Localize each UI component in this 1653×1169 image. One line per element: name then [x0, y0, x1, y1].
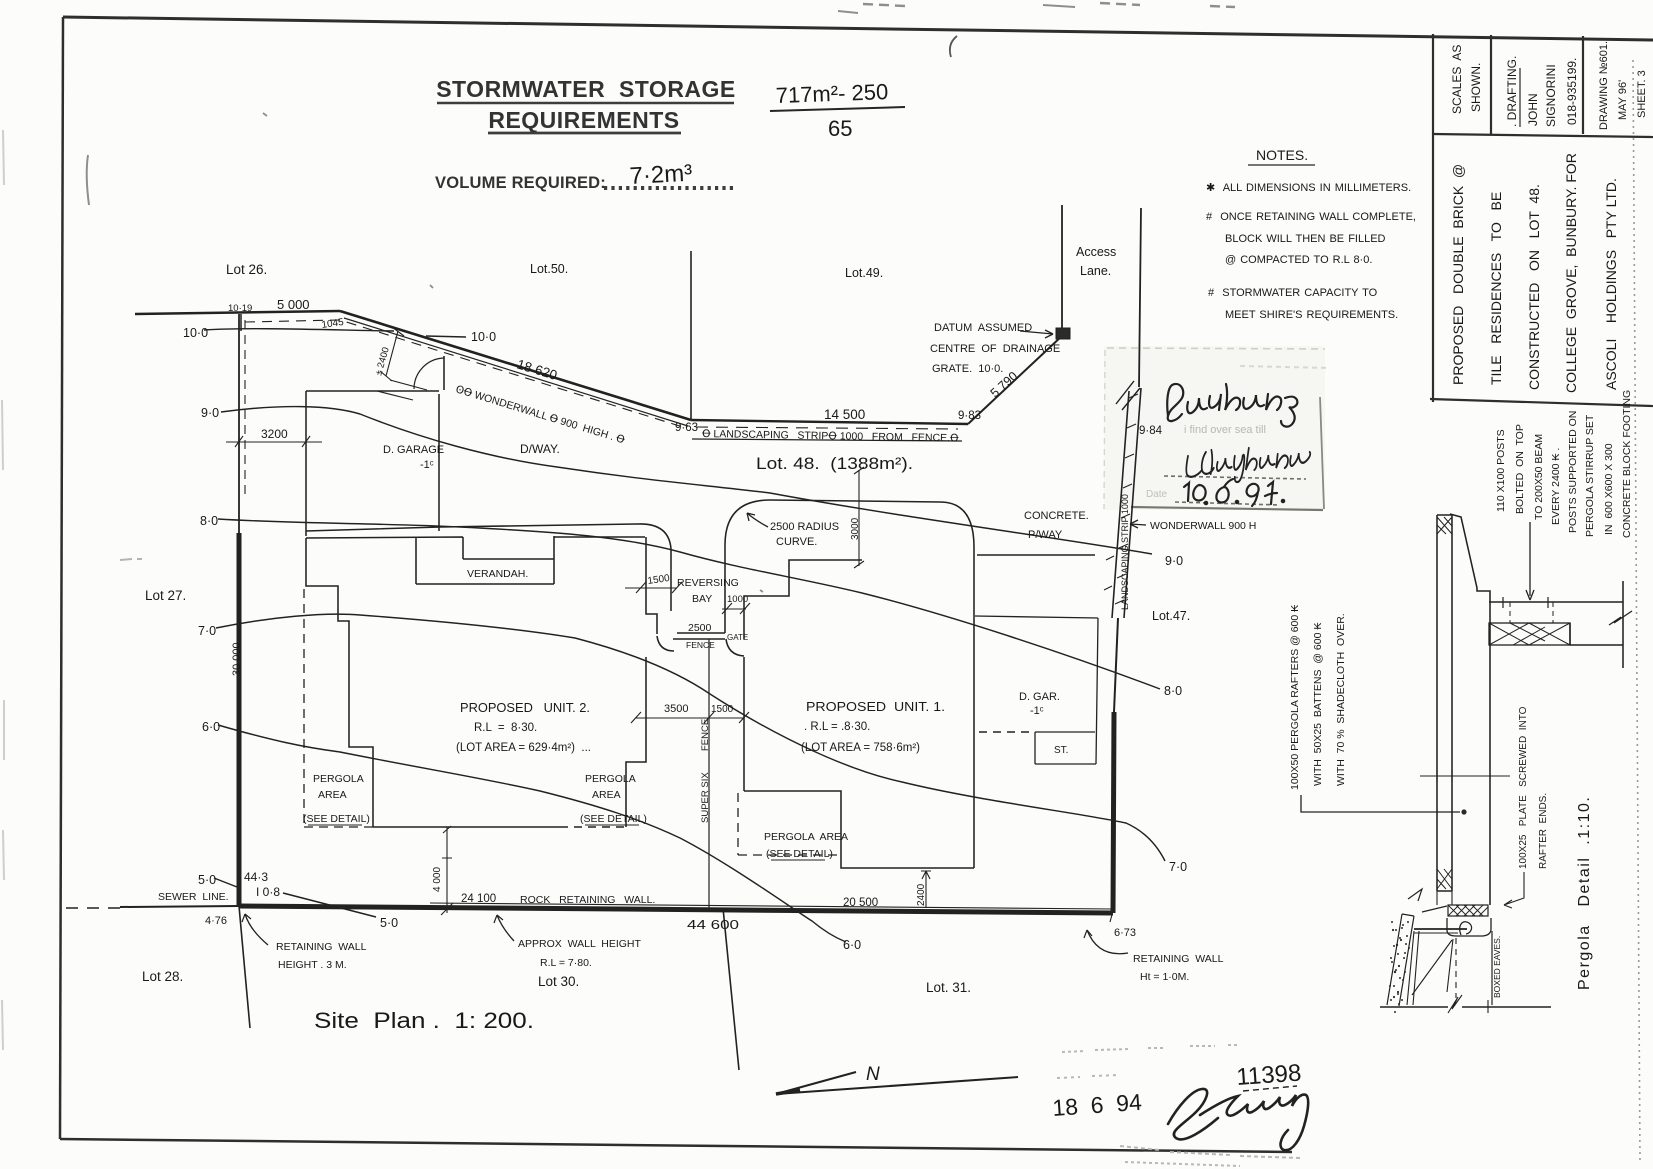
svg-text:(SEE DETAIL): (SEE DETAIL) — [766, 848, 833, 860]
svg-text:Pergola Detail .1:10.: Pergola Detail .1:10. — [1576, 796, 1593, 990]
svg-text:100X50 PERGOLA RAFTERS @ 600 ₭: 100X50 PERGOLA RAFTERS @ 600 ₭ — [1289, 605, 1301, 790]
svg-text:Date: Date — [1146, 489, 1168, 500]
svg-text:2500: 2500 — [688, 622, 712, 634]
svg-text:Lot. 31.: Lot. 31. — [926, 980, 971, 995]
svg-text:SCALES AS: SCALES AS — [1450, 45, 1464, 114]
svg-text:2500 RADIUS: 2500 RADIUS — [770, 521, 839, 533]
svg-text:ST.: ST. — [1054, 745, 1068, 756]
svg-text:110 X100 POSTS: 110 X100 POSTS — [1495, 429, 1507, 512]
svg-text:100X25 PLATE SCREWED INTO: 100X25 PLATE SCREWED INTO — [1518, 706, 1529, 869]
svg-text:MAY 96': MAY 96' — [1617, 80, 1629, 120]
svg-text:6·73: 6·73 — [1114, 927, 1136, 939]
svg-text:ROCK RETAINING WALL.: ROCK RETAINING WALL. — [520, 894, 655, 906]
svg-text:CONCRETE.: CONCRETE. — [1024, 510, 1089, 522]
svg-text:3500: 3500 — [664, 703, 688, 715]
svg-text:i find over sea till: i find over sea till — [1184, 424, 1266, 436]
svg-text:PERGOLA: PERGOLA — [585, 773, 636, 785]
svg-text:44·3: 44·3 — [244, 870, 268, 884]
svg-text:FENCE: FENCE — [686, 640, 715, 650]
svg-text:7·0: 7·0 — [1169, 860, 1187, 874]
svg-text:4 000: 4 000 — [432, 867, 443, 892]
svg-text:# ONCE RETAINING WALL COMPLET: # ONCE RETAINING WALL COMPLETE, — [1206, 211, 1416, 223]
svg-text:(SEE DETAIL): (SEE DETAIL) — [303, 813, 370, 825]
svg-text:SEWER LINE.: SEWER LINE. — [158, 891, 229, 903]
svg-text:FENCE: FENCE — [700, 719, 711, 751]
svg-text:PERGOLA AREA: PERGOLA AREA — [764, 831, 848, 843]
svg-text:65: 65 — [828, 116, 852, 141]
svg-text:GRATE. 10·0.: GRATE. 10·0. — [932, 363, 1003, 375]
svg-text:STORMWATER STORAGE: STORMWATER STORAGE — [436, 76, 736, 102]
svg-text:SUPER SIX: SUPER SIX — [700, 772, 711, 823]
svg-text:CURVE.: CURVE. — [776, 536, 817, 548]
svg-text:1000: 1000 — [727, 594, 748, 605]
svg-text:24 100: 24 100 — [461, 893, 496, 905]
svg-text:1500: 1500 — [711, 704, 734, 715]
svg-text:N: N — [866, 1064, 880, 1085]
svg-text:9·63: 9·63 — [675, 422, 698, 434]
svg-text:# STORMWATER CAPACITY TO: # STORMWATER CAPACITY TO — [1208, 287, 1378, 299]
svg-text:BOXED EAVES.: BOXED EAVES. — [1492, 936, 1502, 998]
svg-text:10·0: 10·0 — [471, 330, 496, 344]
svg-text:APPROX WALL HEIGHT: APPROX WALL HEIGHT — [518, 938, 641, 950]
svg-text:NOTES.: NOTES. — [1256, 147, 1308, 163]
svg-text:Lane.: Lane. — [1080, 264, 1111, 278]
svg-text:VERANDAH.: VERANDAH. — [467, 568, 528, 580]
svg-text:9·0: 9·0 — [201, 406, 219, 420]
svg-text:Lot 26.: Lot 26. — [226, 262, 267, 277]
svg-text:5·0: 5·0 — [380, 916, 398, 930]
svg-text:20 500: 20 500 — [843, 897, 878, 909]
svg-text:WITH 50X25 BATTENS @ 600 ₭: WITH 50X25 BATTENS @ 600 ₭ — [1312, 623, 1324, 786]
svg-text:AREA: AREA — [318, 789, 347, 801]
svg-text:LANDSCAPING STRIP 1000: LANDSCAPING STRIP 1000 — [1120, 494, 1130, 610]
svg-text:6·0: 6·0 — [843, 938, 861, 952]
svg-text:DATUM ASSUMED: DATUM ASSUMED — [934, 322, 1032, 334]
svg-text:IN 600 X600 X 300: IN 600 X600 X 300 — [1603, 443, 1615, 535]
svg-text:RETAINING WALL: RETAINING WALL — [1133, 953, 1224, 965]
svg-text:-1ᶜ: -1ᶜ — [420, 459, 434, 471]
svg-text:(LOT AREA = 758·6m²): (LOT AREA = 758·6m²) — [801, 742, 920, 754]
svg-text:TO 200X50 BEAM: TO 200X50 BEAM — [1533, 434, 1545, 520]
svg-text:SHEET. 3: SHEET. 3 — [1636, 70, 1648, 118]
svg-text:REVERSING: REVERSING — [677, 577, 739, 589]
svg-text:10·0: 10·0 — [183, 326, 208, 340]
svg-text:. DRAFTING.: . DRAFTING. — [1505, 56, 1519, 127]
svg-text:EVERY 2400 ₭ .: EVERY 2400 ₭ . — [1550, 448, 1562, 525]
svg-text:D. GARAGE: D. GARAGE — [383, 444, 444, 456]
svg-text:✱ ALL DIMENSIONS IN MILLIMETE: ✱ ALL DIMENSIONS IN MILLIMETERS. — [1206, 182, 1411, 194]
svg-text:Lot.50.: Lot.50. — [530, 262, 568, 276]
svg-text:9·84: 9·84 — [1139, 425, 1163, 437]
svg-text:I 0·8: I 0·8 — [256, 885, 280, 899]
svg-text:BLOCK WILL THEN BE FILLED: BLOCK WILL THEN BE FILLED — [1225, 233, 1386, 245]
svg-text:3200: 3200 — [261, 427, 288, 441]
svg-text:Lot.47.: Lot.47. — [1152, 609, 1190, 623]
svg-text:CONSTRUCTED ON LOT 48.: CONSTRUCTED ON LOT 48. — [1526, 184, 1542, 390]
svg-text:Ꝋ LANDSCAPING STRIPꝊ 1000: Ꝋ LANDSCAPING STRIPꝊ 1000 FROM FENCE.Ꝋ — [702, 428, 959, 444]
svg-text:7·2m³: 7·2m³ — [629, 160, 693, 190]
svg-text:PERGOLA: PERGOLA — [313, 773, 364, 785]
svg-text:ASCOLI HOLDINGS PTY LTD.: ASCOLI HOLDINGS PTY LTD. — [1603, 178, 1619, 390]
svg-text:8·0: 8·0 — [1164, 684, 1182, 698]
svg-text:Lot. 48. (1388m²).: Lot. 48. (1388m²). — [756, 455, 913, 473]
svg-text:± 2400: ± 2400 — [373, 346, 392, 377]
svg-text:Site Plan . 1: 200.: Site Plan . 1: 200. — [314, 1008, 534, 1033]
svg-text:018-935199.: 018-935199. — [1565, 58, 1579, 125]
svg-text:JOHN: JOHN — [1526, 93, 1540, 126]
svg-text:SHOWN.: SHOWN. — [1469, 63, 1483, 112]
svg-text:10·19: 10·19 — [228, 303, 252, 314]
svg-text:5 000: 5 000 — [277, 297, 310, 312]
svg-text:GATE: GATE — [727, 633, 748, 642]
svg-text:PROPOSED UNIT. 1.: PROPOSED UNIT. 1. — [806, 700, 945, 714]
svg-text:P/WAY: P/WAY — [1028, 529, 1063, 541]
svg-text:PROPOSED UNIT. 2.: PROPOSED UNIT. 2. — [460, 701, 590, 715]
svg-text:POSTS SUPPORTED ON: POSTS SUPPORTED ON — [1567, 411, 1579, 533]
svg-text:SIGNORINI: SIGNORINI — [1544, 64, 1558, 127]
svg-text:Lot 30.: Lot 30. — [538, 974, 579, 989]
svg-text:1045: 1045 — [321, 317, 345, 331]
svg-text:RAFTER ENDS.: RAFTER ENDS. — [1538, 793, 1549, 869]
svg-text:4·76: 4·76 — [205, 915, 227, 927]
svg-text:REQUIREMENTS: REQUIREMENTS — [488, 107, 679, 133]
svg-text:CENTRE OF DRAINAGE: CENTRE OF DRAINAGE — [930, 343, 1060, 355]
svg-text:PROPOSED DOUBLE BRICK @: PROPOSED DOUBLE BRICK @ — [1450, 164, 1466, 385]
svg-text:9·0: 9·0 — [1165, 554, 1183, 568]
svg-text:5·0: 5·0 — [198, 873, 216, 887]
svg-text:R.L = 7·80.: R.L = 7·80. — [540, 957, 592, 969]
svg-text:(LOT AREA = 629·4m²) ...: (LOT AREA = 629·4m²) ... — [456, 742, 591, 754]
svg-text:AREA: AREA — [592, 789, 621, 801]
svg-text:TILE RESIDENCES TO BE: TILE RESIDENCES TO BE — [1488, 192, 1504, 385]
svg-text:Lot.49.: Lot.49. — [845, 266, 883, 280]
svg-text:2400: 2400 — [916, 883, 927, 906]
svg-text:44 600: 44 600 — [687, 917, 739, 932]
svg-text:MEET SHIRE'S REQUIREMENTS.: MEET SHIRE'S REQUIREMENTS. — [1225, 309, 1398, 321]
svg-text:. R.L = .8·30.: . R.L = .8·30. — [804, 721, 870, 733]
svg-text:9·83: 9·83 — [958, 410, 981, 422]
svg-text:COLLEGE GROVE, BUNBURY. FOR: COLLEGE GROVE, BUNBURY. FOR — [1563, 153, 1579, 393]
svg-text:18 6 94: 18 6 94 — [1052, 1089, 1143, 1121]
svg-text:8·0: 8·0 — [200, 514, 218, 528]
svg-text:D/WAY.: D/WAY. — [520, 442, 560, 456]
svg-text:Lot 27.: Lot 27. — [145, 588, 186, 603]
svg-text:DRAWING №601.: DRAWING №601. — [1598, 41, 1610, 130]
svg-text:1500: 1500 — [647, 573, 671, 587]
svg-text:7·0: 7·0 — [198, 624, 216, 638]
svg-text:(SEE DETAIL): (SEE DETAIL) — [580, 813, 647, 825]
svg-text:PERGOLA STIRRUP SET: PERGOLA STIRRUP SET — [1584, 414, 1596, 537]
svg-text:RETAINING WALL: RETAINING WALL — [276, 941, 367, 953]
svg-text:R.L = 8·30.: R.L = 8·30. — [474, 722, 537, 734]
svg-text:@ COMPACTED TO R.L 8·0.: @ COMPACTED TO R.L 8·0. — [1225, 254, 1372, 266]
svg-text:717m²- 250: 717m²- 250 — [775, 79, 888, 108]
svg-text:14 500: 14 500 — [824, 407, 865, 422]
svg-text:-1ᶜ: -1ᶜ — [1030, 705, 1044, 717]
svg-text:6·0: 6·0 — [202, 720, 220, 734]
svg-text:HEIGHT . 3 M.: HEIGHT . 3 M. — [278, 959, 347, 971]
svg-text:D. GAR.: D. GAR. — [1019, 691, 1060, 703]
svg-text:Access: Access — [1076, 245, 1116, 259]
svg-text:VOLUME REQUIRED:: VOLUME REQUIRED: — [435, 174, 606, 192]
svg-text:CONCRETE BLOCK FOOTING: CONCRETE BLOCK FOOTING — [1621, 390, 1633, 538]
svg-text:WITH 70 % SHADECLOTH OVER.: WITH 70 % SHADECLOTH OVER. — [1335, 613, 1347, 786]
svg-text:BOLTED ON TOP: BOLTED ON TOP — [1514, 424, 1526, 514]
svg-text:11398: 11398 — [1236, 1060, 1303, 1091]
svg-text:Lot 28.: Lot 28. — [142, 969, 183, 984]
svg-text:BAY: BAY — [692, 593, 712, 605]
svg-text:WONDERWALL 900 H: WONDERWALL 900 H — [1150, 520, 1256, 532]
svg-text:30 000: 30 000 — [231, 642, 243, 676]
svg-text:Ht = 1·0M.: Ht = 1·0M. — [1140, 971, 1189, 983]
svg-text:3000: 3000 — [850, 517, 861, 540]
